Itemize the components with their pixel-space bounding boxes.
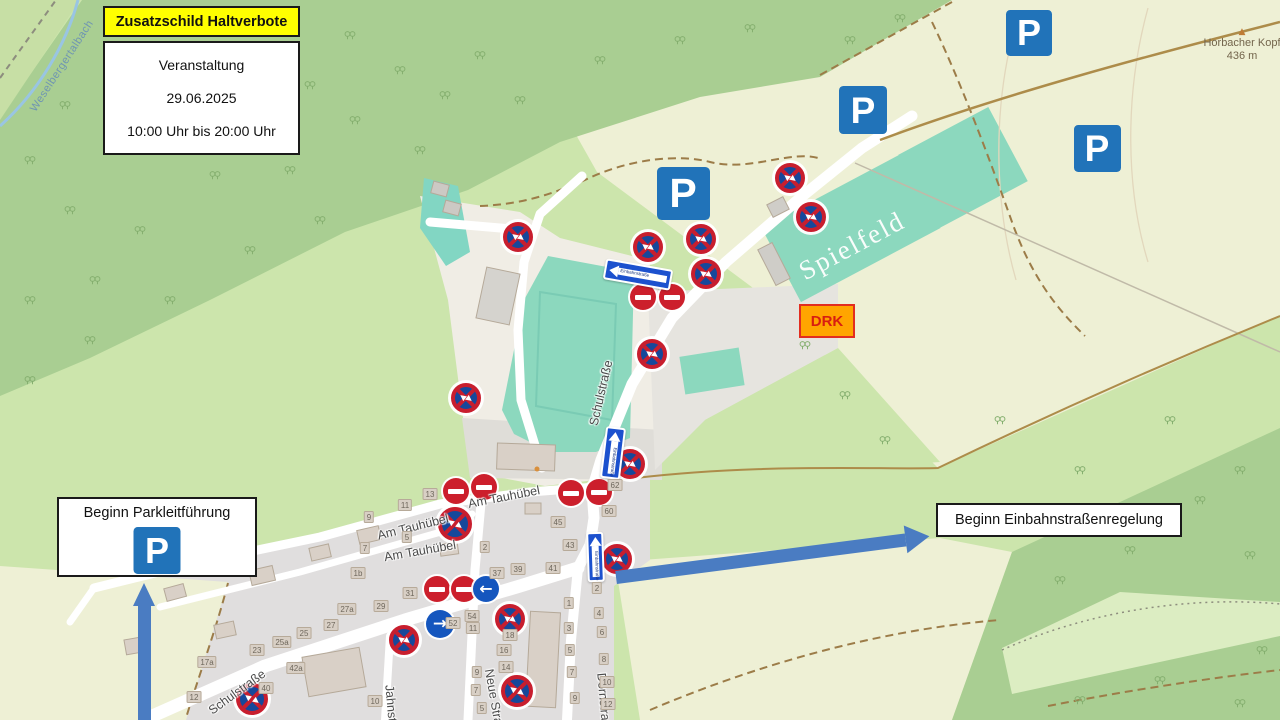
traffic-plan-map: ←→PPPPEinbahnstraßeEinbahnstraßeEinbahns… — [0, 0, 1280, 720]
no-stopping-sign — [796, 202, 826, 232]
drk-box: DRK — [799, 304, 855, 338]
peak-label: ▲ Horbacher Kopf 436 m — [1202, 28, 1280, 63]
house-number: 2 — [592, 582, 602, 594]
peak-icon: ▲ — [1202, 28, 1280, 37]
house-number: 45 — [551, 516, 566, 528]
house-number: 8 — [599, 653, 609, 665]
one-way-sign: Einbahnstraße — [586, 532, 605, 583]
house-number: 43 — [563, 539, 578, 551]
parking-sign: P — [657, 167, 710, 220]
parking-route-arrow — [133, 583, 156, 720]
parkleitfuehrung-label: Beginn Parkleitführung — [84, 505, 231, 521]
parkleitfuehrung-box: Beginn Parkleitführung P — [57, 497, 257, 577]
arrow-head-icon — [904, 522, 931, 553]
no-stopping-sign — [691, 259, 721, 289]
house-number: 9 — [364, 511, 374, 523]
street-label: Am Tauhübel — [383, 538, 457, 564]
house-number: 10 — [368, 695, 383, 707]
house-number: 31 — [403, 587, 418, 599]
house-number: 62 — [608, 479, 623, 491]
house-number: 60 — [602, 505, 617, 517]
house-number: 42a — [286, 662, 305, 674]
house-number: 27a — [337, 603, 356, 615]
einbahn-box: Beginn Einbahnstraßenregelung — [936, 503, 1182, 537]
house-number: 9 — [472, 666, 482, 678]
event-time: 10:00 Uhr bis 20:00 Uhr — [127, 123, 276, 139]
house-number: 27 — [324, 619, 339, 631]
parking-sign: P — [1074, 125, 1121, 172]
house-number: 6 — [597, 626, 607, 638]
house-number: 37 — [490, 567, 505, 579]
parking-sign: P — [134, 527, 181, 574]
house-number: 12 — [601, 698, 616, 710]
street-label: Schulstraße — [587, 359, 616, 427]
no-stopping-sign — [633, 232, 663, 262]
no-stopping-sign — [637, 339, 667, 369]
house-number: 39 — [511, 563, 526, 575]
no-entry-sign — [443, 478, 469, 504]
house-number: 7 — [471, 684, 481, 696]
house-number: 23 — [250, 644, 265, 656]
house-number: 17a — [197, 656, 216, 668]
no-stopping-sign — [686, 224, 716, 254]
parking-sign: P — [1006, 10, 1052, 56]
peak-name: Horbacher Kopf — [1203, 37, 1280, 49]
house-number: 2 — [480, 541, 490, 553]
event-name: Veranstaltung — [159, 57, 245, 73]
house-number: 7 — [360, 542, 370, 554]
house-number: 1b — [351, 567, 366, 579]
no-stopping-sign — [503, 222, 533, 252]
house-number: 16 — [497, 644, 512, 656]
house-number: 4 — [594, 607, 604, 619]
house-number: 40 — [259, 682, 274, 694]
house-number: 10 — [600, 676, 615, 688]
arrow-head-icon — [133, 583, 155, 606]
house-number: 3 — [564, 622, 574, 634]
legend-title-box: Zusatzschild Haltverbote — [103, 6, 300, 37]
house-number: 5 — [565, 644, 575, 656]
house-number: 5 — [402, 531, 412, 543]
house-number: 9 — [570, 692, 580, 704]
house-number: 11 — [398, 499, 412, 511]
no-entry-sign — [558, 480, 584, 506]
street-label: Am Tauhübel — [376, 511, 450, 542]
no-stopping-sign — [451, 383, 481, 413]
no-entry-sign — [424, 576, 450, 602]
peak-elevation: 436 m — [1227, 50, 1258, 62]
no-entry-sign — [630, 284, 656, 310]
house-number: 5 — [477, 702, 487, 714]
house-number: 1 — [564, 597, 574, 609]
no-stopping-sign — [775, 163, 805, 193]
house-number: 25 — [297, 627, 312, 639]
house-number: 18 — [503, 629, 518, 641]
no-stopping-sign — [389, 625, 419, 655]
event-date: 29.06.2025 — [166, 90, 236, 106]
house-number: 54 — [465, 610, 480, 622]
house-number: 25a — [272, 636, 291, 648]
house-number: 14 — [499, 661, 514, 673]
street-label: Jahnstraße — [382, 684, 401, 720]
house-number: 13 — [423, 488, 438, 500]
house-number: 29 — [374, 600, 389, 612]
house-number: 7 — [567, 666, 577, 678]
house-number: 12 — [187, 691, 202, 703]
house-number: 41 — [546, 562, 561, 574]
arrow-shaft — [138, 605, 151, 720]
parking-letter: P — [145, 533, 169, 569]
house-number: 52 — [446, 617, 461, 629]
parking-sign: P — [839, 86, 887, 134]
mandatory-direction-sign: ← — [473, 576, 499, 602]
no-stopping-sign — [501, 675, 533, 707]
house-number: 11 — [466, 622, 480, 634]
event-info-box: Veranstaltung 29.06.2025 10:00 Uhr bis 2… — [103, 41, 300, 155]
